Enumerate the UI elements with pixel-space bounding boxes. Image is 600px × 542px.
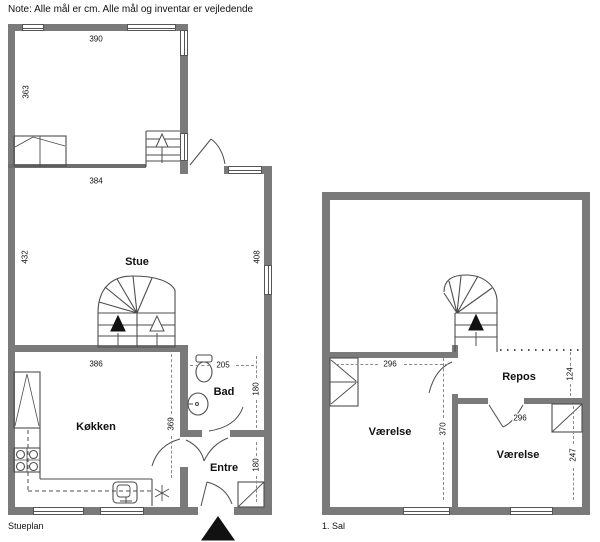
- measure-line: [256, 356, 257, 378]
- dim-entre-right: 180: [252, 457, 261, 472]
- wardrobe-first-floor: [330, 358, 358, 406]
- room-label-bad: Bad: [214, 386, 235, 398]
- measure-line: [336, 364, 378, 365]
- room-label-kokken: Køkken: [76, 421, 116, 433]
- dim-top-room-width: 390: [88, 35, 103, 44]
- floor-label-stueplan: Stueplan: [8, 521, 44, 531]
- measure-line: [256, 476, 257, 502]
- dim-varelse-right-door: 296: [512, 414, 527, 423]
- measure-line: [443, 358, 444, 418]
- measure-line: [573, 406, 574, 444]
- room-label-varelse-left: Værelse: [369, 426, 412, 438]
- stove: [14, 448, 40, 472]
- staircase-ground: [98, 276, 175, 347]
- floor-drain-symbol: [155, 485, 169, 501]
- toilet: [196, 355, 212, 382]
- measure-line: [573, 468, 574, 500]
- measure-line: [570, 384, 571, 396]
- measure-line: [443, 442, 444, 500]
- measure-line: [190, 365, 210, 366]
- entrance-arrow: [202, 517, 234, 540]
- room-label-entre: Entre: [210, 462, 238, 474]
- closet-first-floor: [552, 404, 582, 432]
- dim-kokken-right: 369: [167, 416, 176, 431]
- tall-cabinet: [14, 372, 40, 428]
- bathroom-sink: [188, 393, 208, 415]
- dim-repos-right: 124: [566, 366, 575, 381]
- dim-stue-right: 408: [253, 249, 262, 264]
- floor-plan-canvas: Note: Alle mål er cm. Alle mål og invent…: [0, 0, 600, 542]
- floor-label-1sal: 1. Sal: [322, 521, 345, 531]
- measure-line: [171, 436, 172, 478]
- dim-varelse-left-right: 370: [439, 421, 448, 436]
- dim-bad-top: 205: [215, 361, 230, 370]
- dim-varelse-right-side: 247: [569, 447, 578, 462]
- upper-room-stair: [146, 131, 180, 167]
- staircase-first: [444, 275, 497, 352]
- door-swings-ground: [152, 139, 243, 506]
- dim-stue-top: 384: [88, 177, 103, 186]
- dim-top-room-left: 363: [22, 84, 31, 99]
- dim-bad-right: 180: [252, 381, 261, 396]
- measure-line: [256, 400, 257, 428]
- measure-line: [256, 442, 257, 456]
- kitchen-sink: [113, 482, 137, 503]
- wardrobe-upper-room: [14, 136, 66, 166]
- room-label-repos: Repos: [502, 371, 536, 383]
- measure-line: [236, 365, 254, 366]
- measure-line: [171, 354, 172, 414]
- dim-stue-bottom: 386: [88, 360, 103, 369]
- measure-line: [404, 364, 448, 365]
- dim-varelse-left-top: 296: [382, 360, 397, 369]
- room-label-stue: Stue: [125, 256, 149, 268]
- dim-stue-left: 432: [21, 249, 30, 264]
- measure-line: [570, 352, 571, 366]
- entre-closet: [238, 482, 264, 507]
- room-label-varelse-right: Værelse: [497, 449, 540, 461]
- kitchen-counter: [15, 428, 152, 506]
